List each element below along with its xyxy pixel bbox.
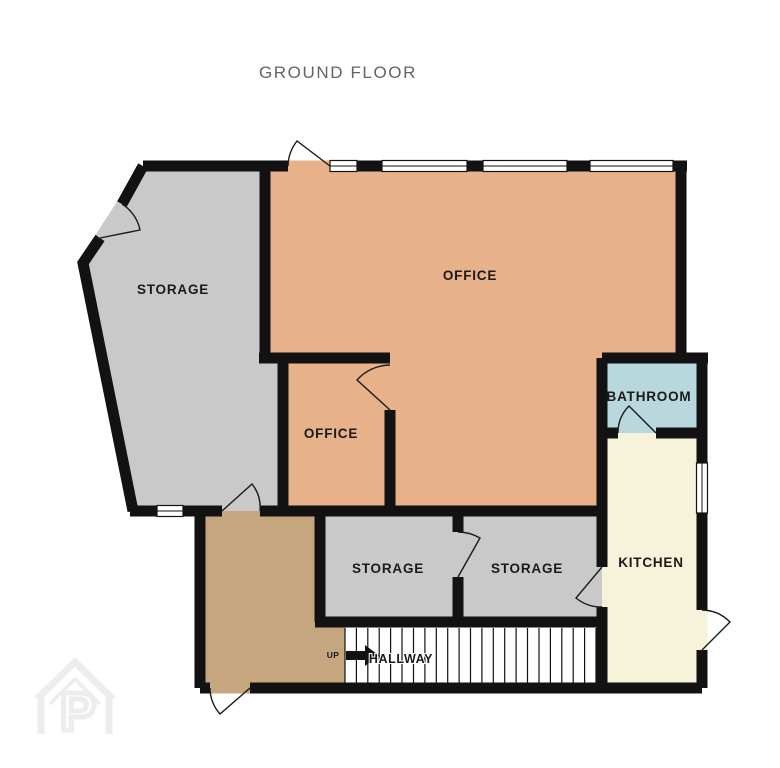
- label-office-small: OFFICE: [304, 426, 358, 441]
- logo-letter: P: [60, 682, 96, 742]
- label-storage-right: STORAGE: [491, 561, 563, 576]
- label-storage-main: STORAGE: [137, 282, 209, 297]
- label-bathroom: BATHROOM: [607, 389, 692, 404]
- label-kitchen: KITCHEN: [618, 555, 684, 570]
- door-gap-kitchen-exterior: [697, 610, 708, 650]
- window-top-2: [382, 161, 467, 172]
- label-office-main: OFFICE: [443, 268, 497, 283]
- label-storage-left: STORAGE: [352, 561, 424, 576]
- window-top-1: [330, 161, 357, 172]
- window-top-3: [483, 161, 567, 172]
- floor-plan: GROUND FLOOR: [0, 0, 780, 768]
- door-gap-office-top: [288, 161, 330, 172]
- label-hallway: HALLWAY: [369, 652, 433, 666]
- window-top-4: [590, 161, 673, 172]
- label-up: UP: [327, 650, 340, 660]
- window-kitchen-right: [697, 463, 708, 513]
- window-storage-bottom: [157, 506, 183, 517]
- page-title: GROUND FLOOR: [259, 63, 417, 82]
- door-gap-entrance: [210, 683, 250, 694]
- watermark-logo: P: [37, 662, 113, 742]
